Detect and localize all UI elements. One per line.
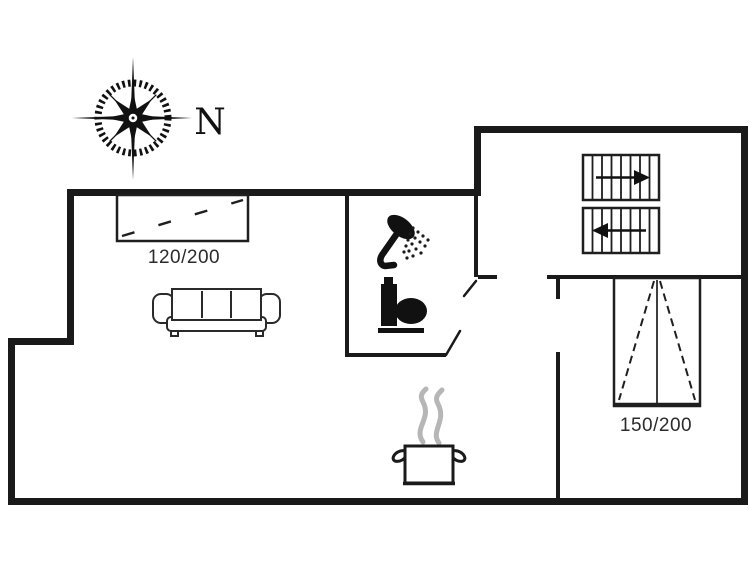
wall-left-upper xyxy=(67,196,74,345)
stairs-up-icon xyxy=(583,155,659,200)
wall-bathroom-right xyxy=(474,196,478,277)
wall-bedroom-left-stub xyxy=(556,279,560,299)
floor-plan: N 120/200 xyxy=(0,0,755,566)
wall-step xyxy=(8,338,74,345)
sofa-icon xyxy=(153,289,280,336)
bed-small-size-label: 120/200 xyxy=(148,247,220,268)
shower-icon xyxy=(380,210,429,266)
wall-top-right xyxy=(474,126,748,133)
wall-connector xyxy=(474,133,481,196)
hall-door-leaf xyxy=(464,281,476,296)
wall-bathroom-left xyxy=(345,196,349,357)
wall-bottom xyxy=(8,498,748,505)
floor-plan-drawing: N 120/200 xyxy=(0,0,755,566)
wall-right xyxy=(741,133,748,498)
wall-door-jamb xyxy=(478,275,497,279)
wall-bedroom-left xyxy=(556,352,560,498)
north-label: N xyxy=(194,102,226,143)
compass-rose-icon xyxy=(72,57,192,180)
bathroom-door-leaf xyxy=(446,331,460,355)
door-leaves xyxy=(446,281,476,355)
double-bed-icon xyxy=(614,278,700,406)
stairs-down-icon xyxy=(583,208,659,253)
cooking-pot-icon xyxy=(391,446,466,484)
wall-bathroom-bottom xyxy=(345,353,446,357)
toilet-icon xyxy=(378,277,427,333)
single-bed-icon xyxy=(117,195,248,241)
steam-icon xyxy=(420,389,442,443)
wall-left-lower xyxy=(8,345,15,505)
bed-large-size-label: 150/200 xyxy=(620,415,692,436)
